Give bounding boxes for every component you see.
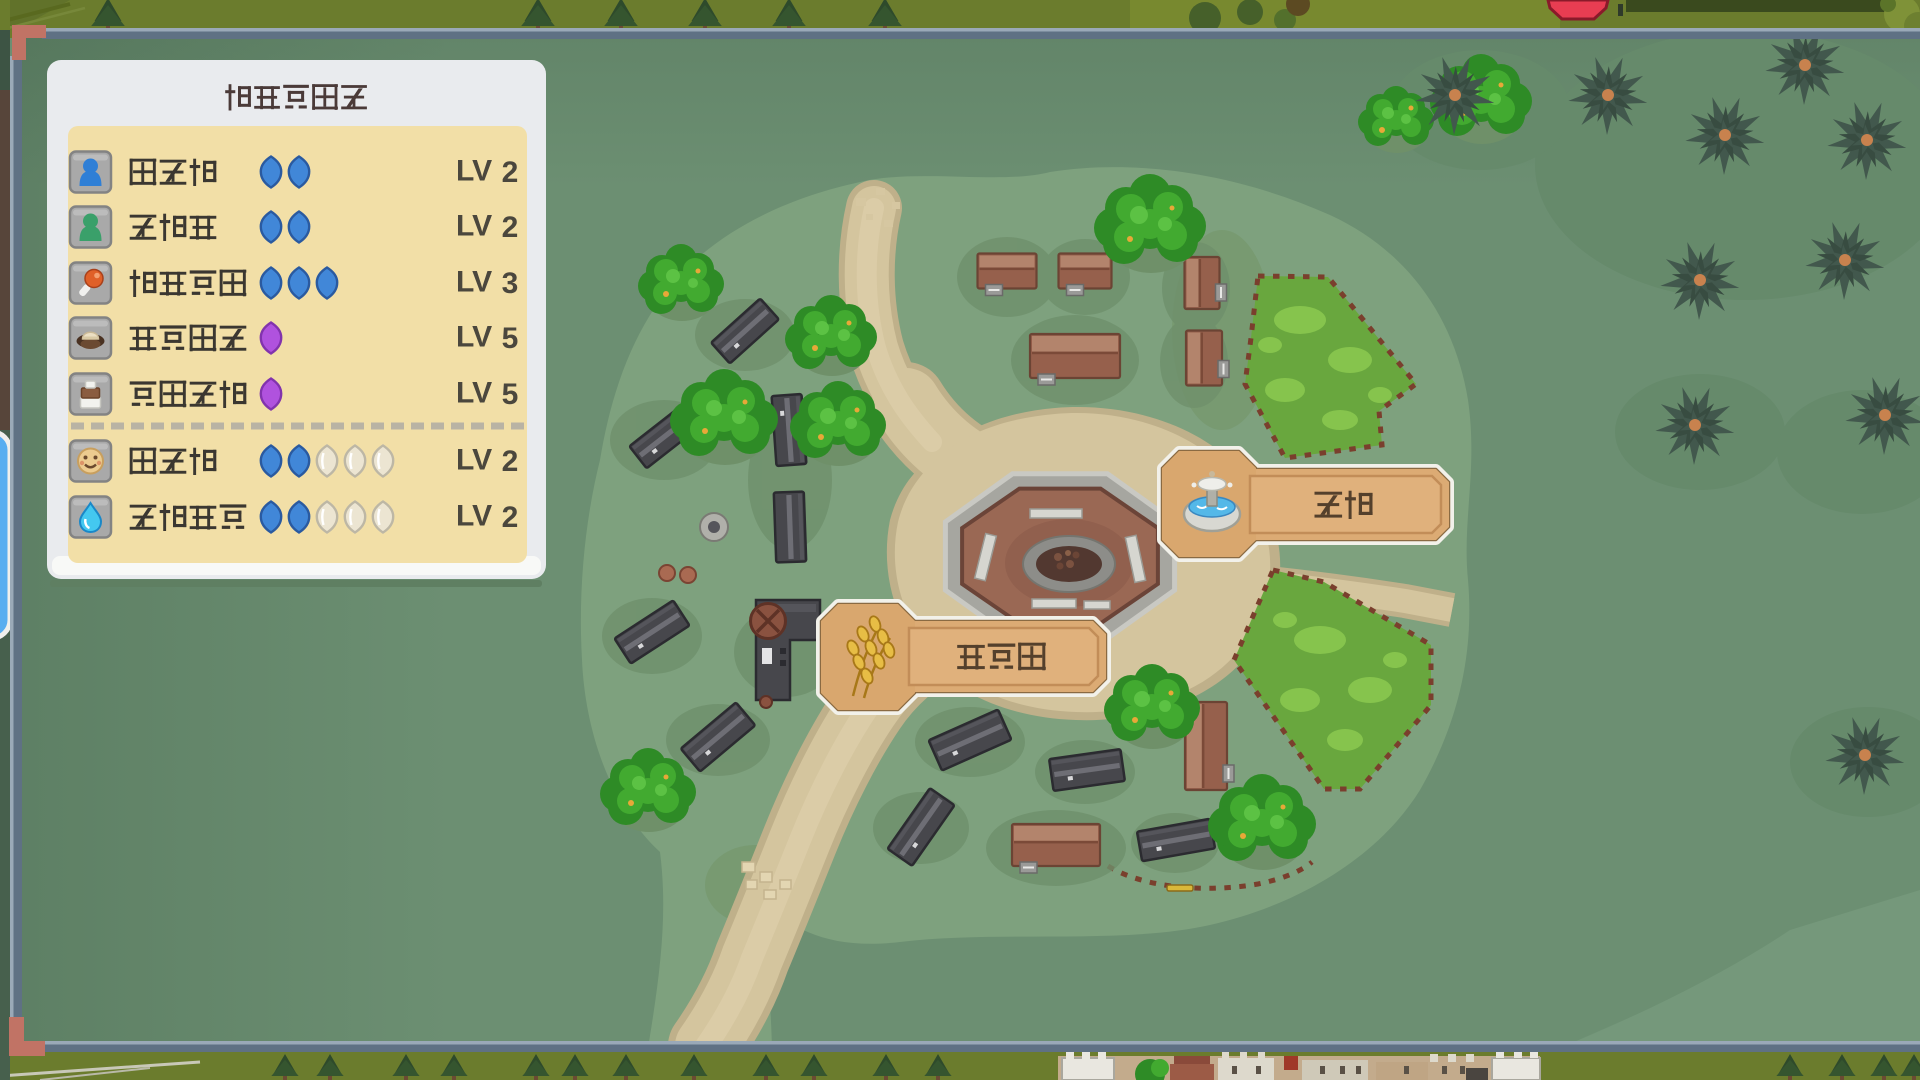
svg-text:2: 2 (502, 211, 519, 244)
svg-text:5: 5 (502, 322, 519, 355)
svg-text:LV: LV (456, 155, 492, 188)
svg-text:5: 5 (502, 378, 519, 411)
svg-text:LV: LV (456, 444, 492, 477)
svg-text:LV: LV (456, 266, 492, 299)
svg-text:2: 2 (502, 445, 519, 478)
svg-text:LV: LV (456, 321, 492, 354)
svg-text:LV: LV (456, 210, 492, 243)
svg-text:LV: LV (456, 500, 492, 533)
svg-text:LV: LV (456, 377, 492, 410)
svg-text:3: 3 (502, 267, 519, 300)
svg-text:2: 2 (502, 501, 519, 534)
svg-text:2: 2 (502, 156, 519, 189)
